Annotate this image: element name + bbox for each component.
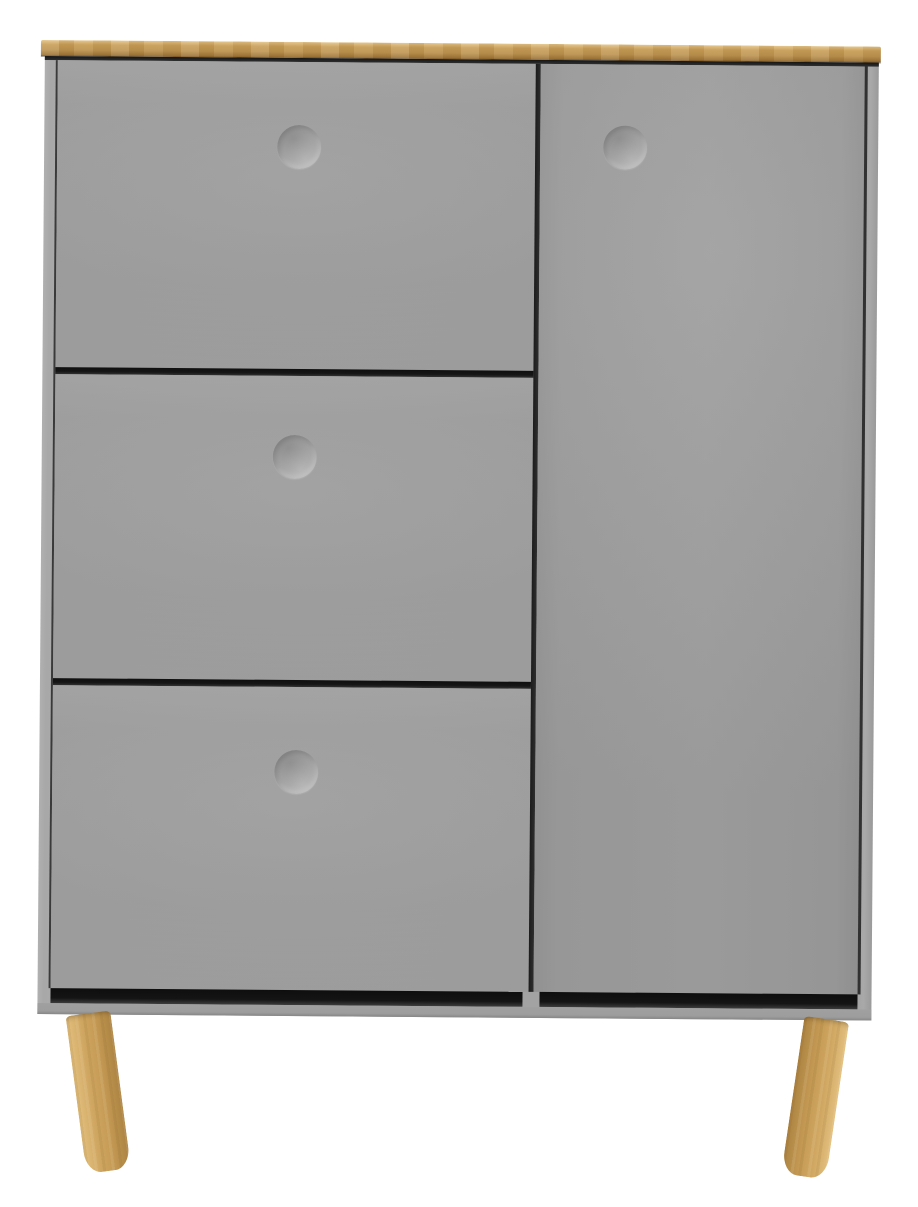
top-drawer-front xyxy=(55,60,535,371)
bottom-drawer-front xyxy=(51,685,531,992)
right-door-front xyxy=(534,64,865,995)
right-front-leg xyxy=(781,1016,849,1180)
middle-drawer-handle-recess xyxy=(273,435,317,479)
cabinet-body xyxy=(37,56,878,1021)
product-photo-background xyxy=(0,0,918,1200)
right-door-handle-recess xyxy=(603,125,647,169)
bottom-drawer-handle-recess xyxy=(274,750,318,794)
highboard-cabinet xyxy=(0,0,918,1207)
top-drawer-handle-recess xyxy=(277,125,321,169)
middle-drawer-front xyxy=(53,374,533,682)
left-front-leg xyxy=(66,1010,132,1174)
